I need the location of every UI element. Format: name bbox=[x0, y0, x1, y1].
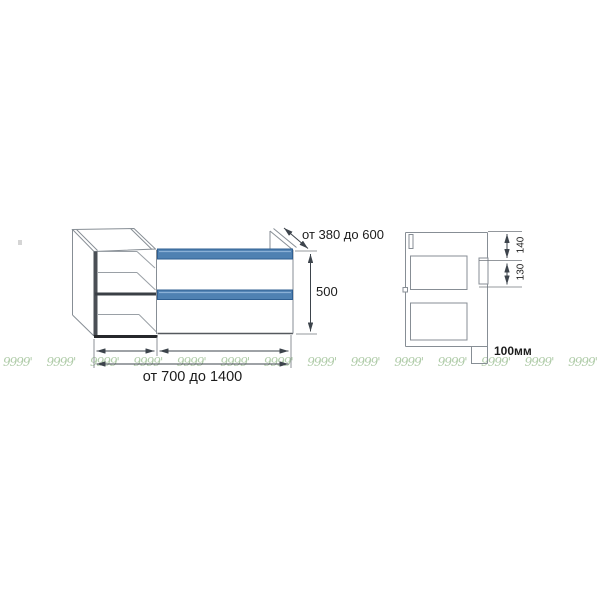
drawer-section bbox=[158, 229, 297, 334]
side-drawer-top bbox=[411, 256, 468, 290]
width-dimension-label: от 700 до 1400 bbox=[94, 369, 291, 385]
drawer-strip-top bbox=[158, 249, 293, 259]
furniture-drawing bbox=[0, 0, 600, 600]
perspective-view bbox=[73, 228, 318, 368]
open-shelf-section bbox=[73, 229, 158, 337]
drawer-strip-bottom bbox=[158, 290, 293, 300]
back-panel-edge bbox=[409, 235, 413, 249]
side-top-dimension-label: 140 bbox=[516, 237, 527, 254]
drawing-canvas: 9999'9999'9999'9999'9999'9999'9999'9999'… bbox=[0, 0, 600, 600]
height-dimension-label: 500 bbox=[316, 284, 338, 299]
depth-dimension-label: от 380 до 600 bbox=[302, 227, 384, 242]
side-middle-dimension-label: 130 bbox=[516, 264, 527, 281]
side-drawer-bottom bbox=[411, 303, 468, 340]
plinth bbox=[472, 347, 488, 364]
left-edge-notch bbox=[403, 288, 408, 293]
drawer-front-profile bbox=[479, 258, 488, 284]
top-panel bbox=[73, 229, 156, 252]
plinth-dimension-label: 100мм bbox=[494, 344, 532, 358]
